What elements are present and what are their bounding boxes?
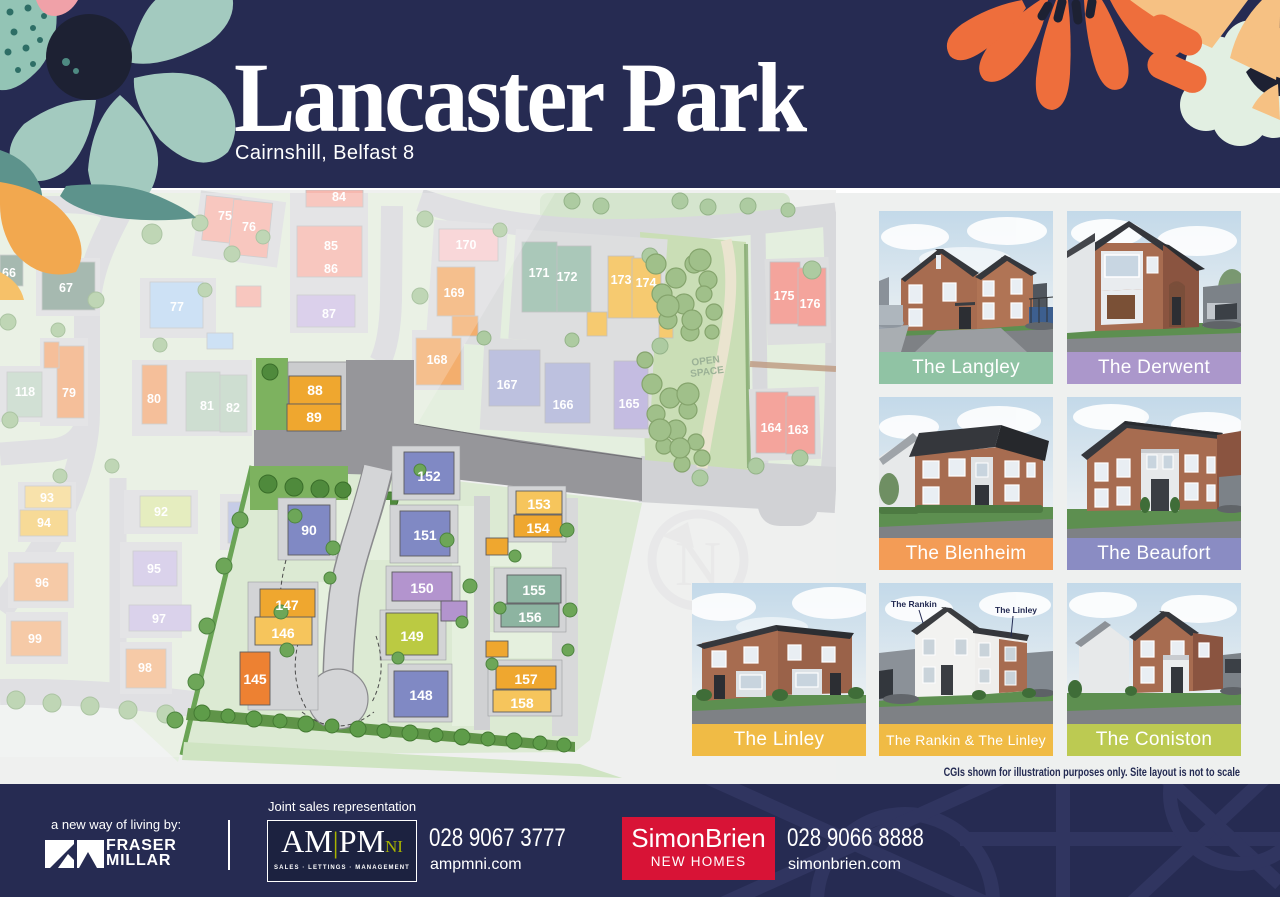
- svg-text:147: 147: [275, 597, 299, 613]
- svg-text:157: 157: [514, 671, 538, 687]
- svg-text:88: 88: [307, 382, 323, 398]
- svg-text:The Rankin: The Rankin: [891, 599, 937, 609]
- svg-text:149: 149: [400, 628, 424, 644]
- svg-text:146: 146: [271, 625, 295, 641]
- svg-text:145: 145: [243, 671, 267, 687]
- svg-text:153: 153: [527, 496, 551, 512]
- svg-text:152: 152: [417, 468, 441, 484]
- svg-text:151: 151: [413, 527, 437, 543]
- svg-text:154: 154: [526, 520, 550, 536]
- svg-text:158: 158: [510, 695, 534, 711]
- svg-text:156: 156: [518, 609, 542, 625]
- svg-text:89: 89: [306, 409, 322, 425]
- svg-text:90: 90: [301, 522, 317, 538]
- svg-text:148: 148: [409, 687, 433, 703]
- svg-text:150: 150: [410, 580, 434, 596]
- svg-text:155: 155: [522, 582, 546, 598]
- svg-text:The Linley: The Linley: [995, 605, 1037, 615]
